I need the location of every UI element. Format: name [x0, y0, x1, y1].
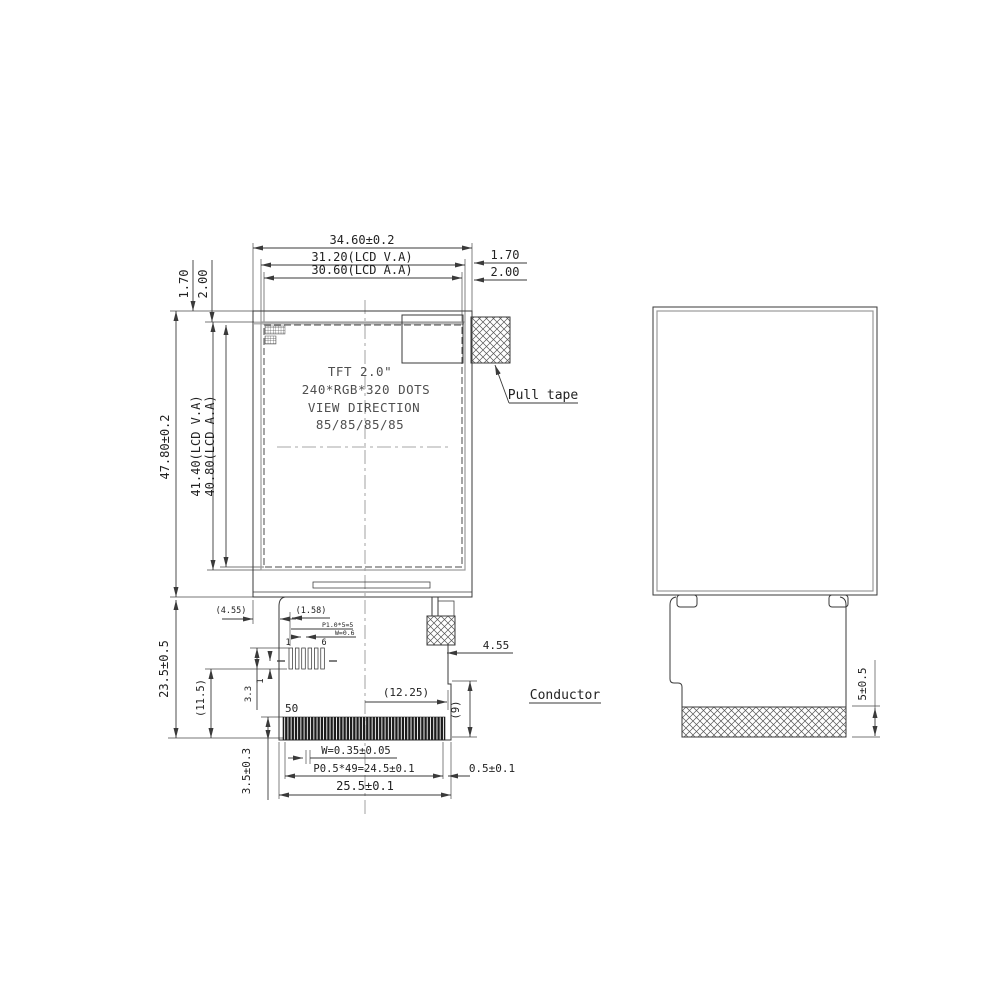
panel-text-line2: 240*RGB*320 DOTS — [302, 382, 430, 397]
conductor-label: Conductor — [530, 688, 601, 703]
bezel-slot — [313, 582, 430, 588]
dim-right-gap1: 1.70 — [491, 248, 520, 262]
dim-pin-pitch: P1.0*5=5 — [322, 621, 353, 629]
pin-group — [277, 648, 337, 669]
dim-width-aa: 30.60(LCD A.A) — [311, 263, 412, 277]
back-inner-outline — [657, 311, 873, 591]
dim-conductor-length: 3.5±0.3 — [240, 748, 253, 794]
dim-tape-offset: 4.55 — [483, 639, 510, 652]
dim-height-outline: 47.80±0.2 — [158, 414, 172, 479]
panel-text-line1: TFT 2.0" — [328, 364, 392, 379]
back-outline — [653, 307, 877, 595]
pull-tape-hatch — [471, 317, 510, 363]
dim-pin-offset: (1.58) — [296, 606, 327, 616]
first-pixel-marker — [265, 326, 285, 334]
pin-first-label: 1 — [285, 638, 290, 648]
back-fpc-left-edge — [670, 597, 682, 707]
panel-text-block: TFT 2.0" 240*RGB*320 DOTS VIEW DIRECTION… — [302, 364, 430, 432]
back-tab-left — [677, 595, 697, 607]
dim-pin-width: W=0.6 — [335, 629, 355, 637]
dim-fpc-length: 23.5±0.5 — [157, 640, 171, 698]
dim-fpc-width: 25.5±0.1 — [336, 779, 394, 793]
fpc-ledge — [438, 601, 454, 616]
conductor-count-label: 50 — [285, 702, 298, 715]
dim-width-outline: 34.60±0.2 — [329, 233, 394, 247]
dim-left-gap2: 2.00 — [196, 270, 210, 299]
dim-width-va: 31.20(LCD V.A) — [311, 250, 412, 264]
module-outline — [253, 311, 472, 597]
pull-tape-label: Pull tape — [508, 388, 579, 403]
dim-conductor-pitch: P0.5*49=24.5±0.1 — [313, 763, 414, 775]
lcd-active-area — [264, 325, 462, 567]
lcd-dimensional-drawing: 34.60±0.2 31.20(LCD V.A) 30.60(LCD A.A) … — [0, 0, 1000, 1000]
annotation-labels: Pull tape Conductor — [508, 388, 601, 703]
panel-text-line3: VIEW DIRECTION — [308, 400, 420, 415]
dim-pin-gap: 1 — [256, 678, 266, 683]
dim-height-va: 41.40(LCD V.A) — [189, 395, 203, 496]
dim-right-gap2: 2.00 — [491, 265, 520, 279]
dim-fpc-inner-length: (11.5) — [195, 679, 207, 717]
dim-center-offset: (12.25) — [383, 686, 429, 699]
dim-conductor-width: W=0.35±0.05 — [321, 745, 391, 757]
dim-left-offset: (4.55) — [216, 606, 247, 616]
first-pixel-marker-2 — [265, 336, 276, 344]
side-view — [653, 307, 877, 737]
dim-pin-height: 3.3 — [244, 686, 254, 702]
panel-text-line4: 85/85/85/85 — [316, 417, 404, 432]
fpc-conductor-pad-hatch — [427, 616, 455, 645]
dim-height-aa: 40.80(LCD A.A) — [203, 395, 217, 496]
conductor-band-50pin — [283, 717, 445, 740]
dim-side-conductor-height: 5±0.5 — [856, 667, 869, 700]
drawing-canvas: 34.60±0.2 31.20(LCD V.A) 30.60(LCD A.A) … — [0, 0, 1000, 1000]
dim-right-offset: (9) — [450, 701, 462, 720]
lcd-viewing-area — [261, 322, 465, 570]
pin-last-label: 6 — [321, 638, 326, 648]
dim-edge-margin: 0.5±0.1 — [469, 762, 515, 775]
back-conductor-hatch — [682, 707, 846, 737]
dim-left-gap1: 1.70 — [177, 270, 191, 299]
